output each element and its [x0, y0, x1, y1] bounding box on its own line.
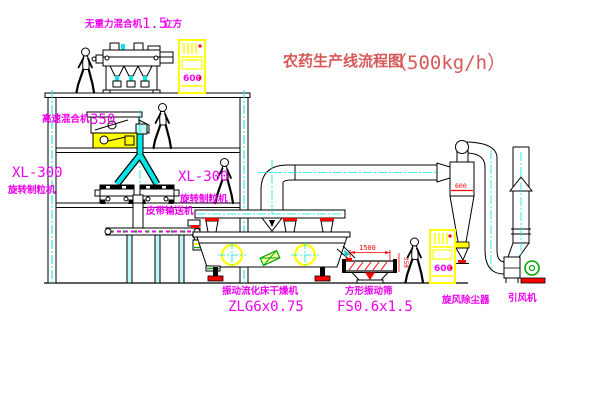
label-granulator-right-name: 旋转制粒机	[179, 193, 228, 205]
label-granulator-left-model: XL-300	[12, 165, 63, 181]
cad-flow-diagram: 600	[0, 0, 600, 403]
vibrating-screen-machine: 1500 350	[342, 244, 409, 283]
screen-height-dim: 350	[402, 257, 409, 268]
exhaust-stack	[508, 147, 532, 257]
label-granulator-left-name: 旋转制粒机	[7, 184, 56, 196]
drawing-title: 农药生产线流程图 （500kg/h）	[282, 52, 506, 74]
label-fan-name: 引风机	[508, 292, 537, 304]
fan-motor-icon	[525, 261, 539, 275]
granulator-right-machine	[140, 185, 179, 204]
person-figure	[154, 104, 172, 149]
granulator-left-machine	[95, 185, 134, 204]
screen-length-dim: 1500	[359, 244, 376, 252]
label-screen-model: FS0.6x1.5	[337, 299, 413, 315]
belt-conveyor-machine	[105, 220, 200, 283]
label-belt-conveyor: 皮带输送机	[145, 205, 194, 217]
title-main: 农药生产线流程图	[282, 52, 403, 70]
label-gravity-mixer-unit: 立方	[163, 18, 183, 30]
control-cabinet-right: 600	[430, 230, 455, 283]
label-granulator-right-model: XL-300	[178, 169, 229, 185]
label-dryer-model: ZLG6x0.75	[228, 299, 304, 315]
gravity-mixer-machine	[92, 43, 173, 93]
label-cyclone-name: 旋风除尘器	[441, 294, 490, 306]
cyclone-mark: 600	[455, 182, 467, 190]
person-figure	[77, 48, 95, 93]
label-gravity-mixer-name: 无重力混合机	[84, 18, 143, 30]
label-hs-mixer-name: 高速混合机	[42, 113, 90, 125]
label-hs-mixer-model: 350	[90, 112, 115, 128]
granulator-discharge-pipe	[131, 195, 145, 228]
label-dryer-name: 振动流化床干燥机	[222, 285, 299, 297]
title-capacity: （500kg/h）	[388, 52, 506, 74]
diagram-canvas: 600	[0, 0, 600, 403]
control-cabinet-top: 600	[179, 40, 205, 93]
induced-draft-fan-machine	[504, 257, 545, 283]
label-screen-name: 方形振动筛	[345, 285, 393, 297]
